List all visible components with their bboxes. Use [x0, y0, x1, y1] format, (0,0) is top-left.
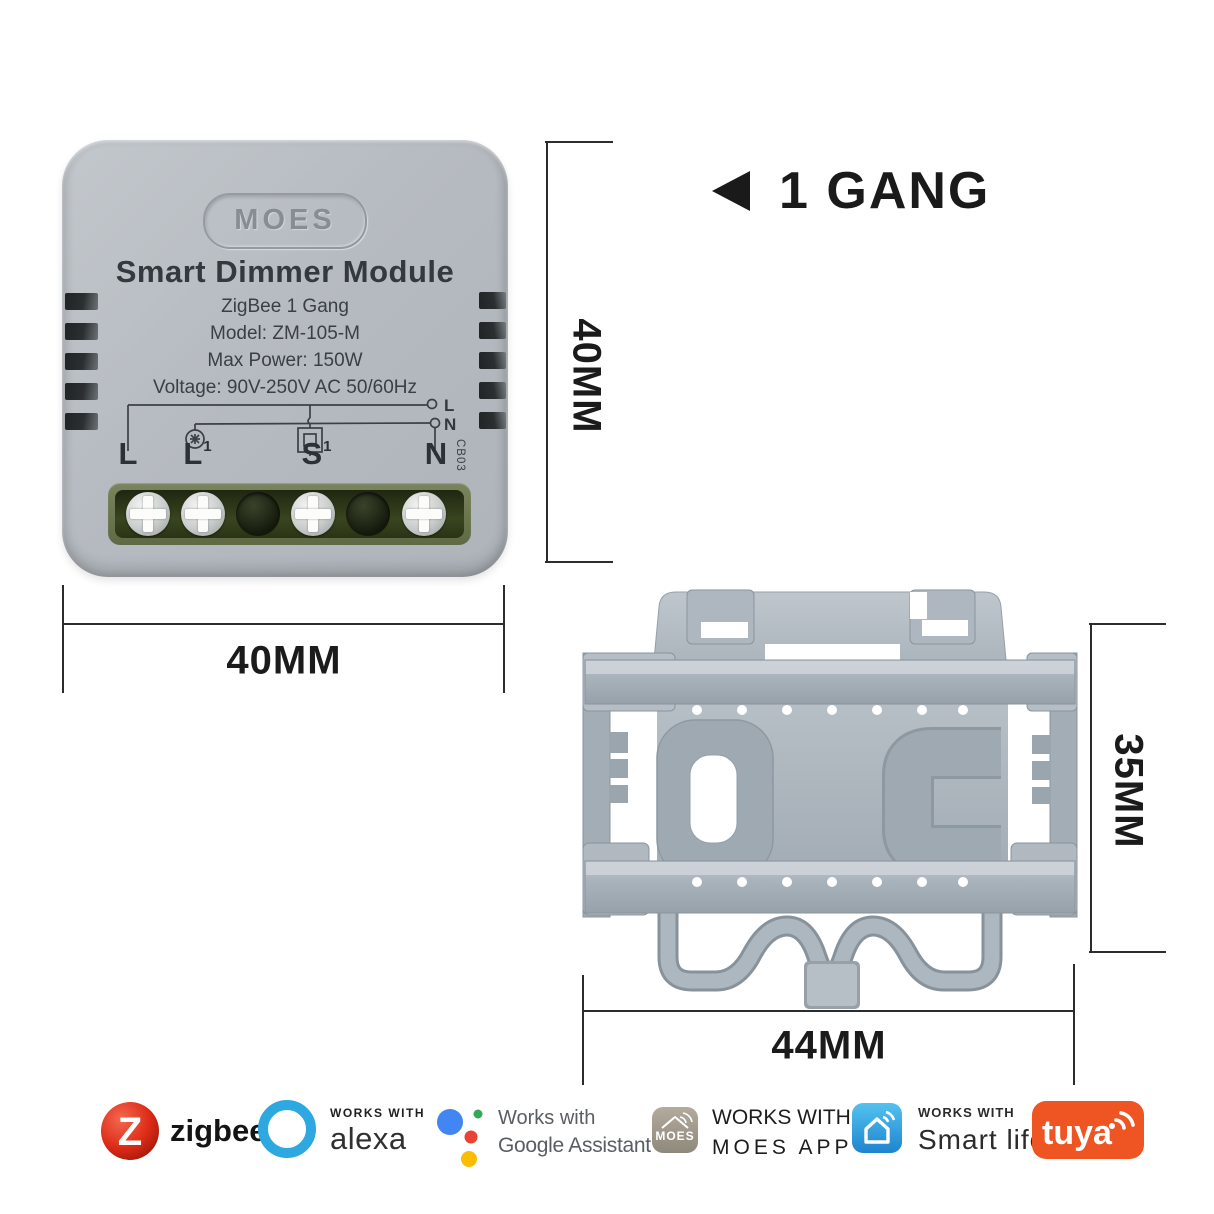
svg-text:tuya: tuya — [1042, 1114, 1113, 1152]
product-infographic: MOES Smart Dimmer Module ZigBee 1 Gang M… — [0, 0, 1214, 1214]
smart-life-works-with: WORKS WITH — [918, 1105, 1046, 1120]
bracket-width-label: 44MM — [771, 1024, 886, 1069]
left-boss-slot — [690, 755, 737, 843]
terminal-screw — [126, 492, 170, 536]
alexa-badge: WORKS WITH alexa — [330, 1106, 425, 1157]
diagram-label-n: N — [444, 415, 456, 434]
moes-app-icon: MOES — [652, 1107, 698, 1153]
smart-life-icon — [852, 1103, 902, 1153]
board-code: CB03 — [454, 439, 466, 472]
spec-gang: ZigBee 1 Gang — [62, 293, 508, 320]
moes-works-with: WORKS WITH — [712, 1106, 853, 1130]
moes-badge: WORKS WITH MOES APP — [712, 1106, 853, 1160]
device-height-label: 40MM — [564, 318, 609, 433]
terminal-label-S1: S1 — [301, 436, 330, 472]
smart-life-label: Smart life — [918, 1124, 1046, 1156]
vent-slot — [479, 412, 506, 429]
moes-embossed-logo: MOES — [203, 193, 367, 249]
alexa-icon — [257, 1099, 317, 1159]
left-arrow-icon — [712, 171, 750, 211]
device-title: Smart Dimmer Module — [62, 254, 508, 290]
din-spring-clip — [668, 913, 992, 1009]
spring-center-tab — [807, 964, 857, 1006]
terminal-label-L: L — [119, 436, 138, 472]
svg-text:MOES: MOES — [655, 1129, 694, 1143]
terminal-screw — [181, 492, 225, 536]
alexa-label: alexa — [330, 1121, 425, 1157]
terminal-label-N: N — [425, 436, 447, 472]
moes-app-label: MOES APP — [712, 1136, 853, 1160]
terminal-strip — [108, 483, 471, 545]
bracket-height-label: 35MM — [1106, 733, 1151, 848]
google-assistant-label: Google Assistant — [498, 1134, 651, 1158]
zigbee-label: zigbee — [170, 1113, 266, 1149]
terminal-hole — [346, 492, 390, 536]
terminal-label-L1: L1 — [183, 436, 210, 472]
svg-text:Z: Z — [118, 1110, 142, 1154]
diagram-label-l: L — [444, 396, 454, 415]
zigbee-icon: Z — [100, 1101, 160, 1161]
terminal-screw — [402, 492, 446, 536]
google-badge: Works with Google Assistant — [498, 1107, 651, 1158]
google-assistant-icon — [434, 1095, 496, 1171]
wiring-diagram: L N — [112, 393, 472, 475]
spec-power: Max Power: 150W — [62, 347, 508, 374]
terminal-hole — [236, 492, 280, 536]
vent-slot — [65, 413, 98, 430]
gang-callout: 1 GANG — [779, 161, 990, 221]
alexa-works-with: WORKS WITH — [330, 1106, 425, 1120]
terminal-screw — [291, 492, 335, 536]
tuya-icon: tuya — [1032, 1101, 1144, 1159]
smart-life-badge: WORKS WITH Smart life — [918, 1105, 1046, 1156]
device-specs: ZigBee 1 Gang Model: ZM-105-M Max Power:… — [62, 293, 508, 401]
device-width-label: 40MM — [226, 639, 341, 684]
mounting-bracket — [580, 585, 1080, 1015]
dimmer-module-device: MOES Smart Dimmer Module ZigBee 1 Gang M… — [62, 140, 508, 577]
google-works-with: Works with — [498, 1107, 651, 1130]
spec-model: Model: ZM-105-M — [62, 320, 508, 347]
